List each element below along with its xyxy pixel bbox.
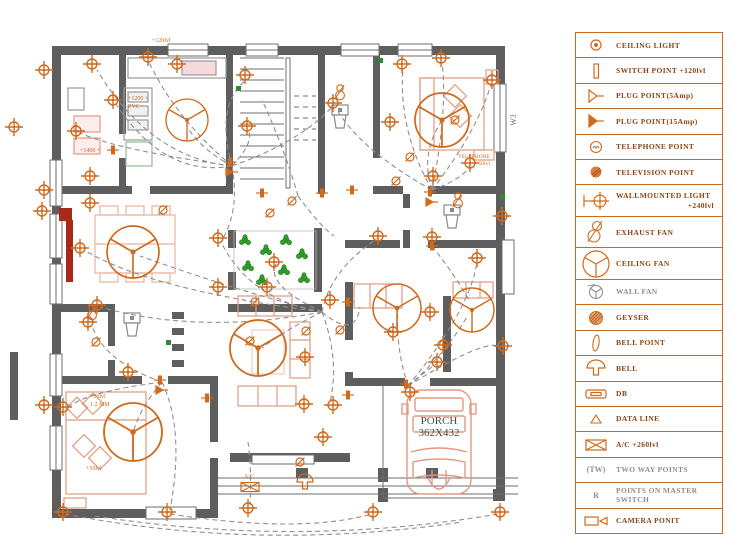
switch-point-icon: [107, 146, 119, 155]
switch-point-icon: [316, 189, 328, 198]
plant-icon: [280, 235, 291, 245]
legend-row-camera: CAMERA PONIT: [576, 509, 722, 533]
plant-icon: [278, 265, 289, 275]
level-label: 1.2 MM: [90, 402, 110, 408]
veranda-steps: [218, 386, 518, 498]
wall-light-icon: [33, 202, 51, 220]
wall-light-icon: [493, 207, 511, 225]
wall-light-icon: [239, 499, 257, 517]
legend-row-bell-point: BELL POINT: [576, 331, 722, 356]
level-label: +1400 +: [80, 148, 101, 154]
legend-label: CEILING FAN: [616, 259, 722, 268]
legend-row-telephone-point: TELEPHONE POINT: [576, 135, 722, 160]
wall-light-icon: [321, 291, 339, 309]
wc-icon: [124, 313, 140, 336]
legend-row-bell: BELL: [576, 356, 722, 381]
switch-point-icon: [576, 62, 616, 80]
legend-row-ac: A/C +260lvl: [576, 432, 722, 457]
ceiling-fan-icon: [576, 249, 616, 279]
plug-point-15amp-icon: [576, 113, 616, 129]
legend-label: A/C +260lvl: [616, 440, 722, 449]
legend-label: DATA LINE: [616, 414, 722, 423]
porch-size-label: 362X432: [419, 427, 460, 439]
porch-label: PORCH: [421, 415, 458, 427]
legend-label: CAMERA PONIT: [616, 516, 722, 525]
legend-label: PLUG POINT(5Amp): [616, 91, 722, 100]
legend-row-geyser: GEYSER: [576, 305, 722, 330]
level-label: +50lvl: [476, 161, 491, 167]
wallmounted-light-icon: [576, 191, 616, 211]
plug-point-icon: [392, 177, 401, 186]
level-label: PVC +: [128, 104, 145, 110]
plant-icon: [296, 249, 307, 259]
plant-icon: [239, 235, 250, 245]
ceiling-fan-icon: [104, 403, 162, 461]
legend-row-ceiling-light: CEILING LIGHT: [576, 33, 722, 58]
legend-label: BELL POINT: [616, 338, 722, 347]
legend-row-ceiling-fan: CEILING FAN: [576, 248, 722, 280]
exhaust-fan-icon: [576, 219, 616, 245]
legend-row-two-way: (TW) TWO WAY POINTS: [576, 458, 722, 483]
wall-light-icon: [238, 117, 256, 135]
legend-label: DB: [616, 389, 722, 398]
wall-light-icon: [265, 253, 283, 271]
wall-light-icon: [83, 55, 101, 73]
plug-point-icon: [336, 326, 345, 335]
wall-light-icon: [491, 503, 509, 521]
legend-label: TWO WAY POINTS: [616, 465, 722, 474]
bell-icon: [576, 358, 616, 378]
wall-light-icon: [295, 395, 313, 413]
plug-point-icon: [159, 206, 168, 215]
legend-row-plug-15amp: PLUG POINT(15Amp): [576, 109, 722, 134]
window-label: W3: [509, 114, 518, 126]
ceiling-light-icon: [576, 37, 616, 53]
wc-icon: [444, 205, 460, 228]
wall-light-icon: [421, 303, 439, 321]
ceiling-fan-icon: [166, 99, 208, 141]
legend-label: WALL FAN: [616, 287, 722, 296]
geyser-icon: [576, 309, 616, 327]
legend-label: SWITCH POINT +120lvl: [616, 66, 722, 75]
legend-label: POINTS ON MASTER SWITCH: [616, 486, 722, 505]
telephone-point-icon: [576, 139, 616, 155]
wall-fan-icon: [576, 283, 616, 301]
switch-point-icon: [154, 376, 166, 385]
wall-light-icon: [381, 113, 399, 131]
wall-light-icon: [209, 229, 227, 247]
wall-light-icon: [5, 118, 23, 136]
legend-row-switch-point: SWITCH POINT +120lvl: [576, 58, 722, 83]
two-way-icon: (TW): [576, 465, 616, 474]
legend-row-wallmounted-light: WALLMOUNTED LIGHT+240lvl: [576, 185, 722, 217]
legend-row-db: DB: [576, 382, 722, 407]
switch-point-icon: [256, 189, 268, 198]
ceiling-fan-icon: [450, 288, 494, 332]
plug-point-icon: [406, 153, 415, 162]
legend-row-exhaust-fan: EXHAUST FAN: [576, 217, 722, 249]
legend-label: GEYSER: [616, 313, 722, 322]
wall-light-icon: [81, 194, 99, 212]
legend-label: TELEPHONE POINT: [616, 142, 722, 151]
legend-panel: CEILING LIGHT SWITCH POINT +120lvl PLUG …: [575, 32, 723, 534]
ac-icon: [576, 437, 616, 453]
legend-label: CEILING LIGHT: [616, 41, 722, 50]
plant-icon: [298, 273, 309, 283]
telephone-label: TELEPHONE: [458, 154, 490, 160]
legend-label: EXHAUST FAN: [616, 228, 722, 237]
ceiling-fan-icon: [230, 320, 286, 376]
wall-light-icon: [296, 348, 314, 366]
legend-label: PLUG POINT(15Amp): [616, 117, 722, 126]
plug-point-icon: [302, 327, 311, 336]
ceiling-fan-icon: [415, 93, 469, 147]
wall-light-icon: [35, 396, 53, 414]
floor-plan-drawing: +120lvl +1200 + PVC + +1400 + TELEPHONE …: [0, 0, 568, 550]
courtyard-plants: [234, 231, 316, 289]
plug-point-icon: [92, 338, 101, 347]
plug-point-icon: [266, 209, 275, 218]
switch-clusters: [107, 146, 438, 403]
plug-point-icon: [426, 198, 438, 206]
wall-light-icon: [35, 61, 53, 79]
legend-label: BELL: [616, 364, 722, 373]
plant-icon: [242, 261, 253, 271]
ac-label: A/C: [244, 474, 254, 480]
exhaust-fan-icon: [335, 85, 344, 100]
wall-light-icon: [81, 167, 99, 185]
television-point-icon: [576, 164, 616, 180]
level-label: +1200 +: [128, 96, 149, 102]
level-label: +120lvl: [152, 38, 171, 44]
data-line-icon: [576, 412, 616, 426]
plug-point-5amp-icon: [576, 88, 616, 104]
legend-label: TELEVISION POINT: [616, 168, 722, 177]
wall-light-icon: [468, 249, 486, 267]
wall-light-icon: [324, 396, 342, 414]
wall-light-icon: [71, 239, 89, 257]
ceiling-fan-icon: [107, 226, 159, 278]
camera-icon: [576, 514, 616, 528]
master-switch-icon: R: [576, 491, 616, 500]
plant-icon: [256, 275, 267, 285]
wall-light-icon: [314, 428, 332, 446]
electrical-floor-plan-page: +120lvl +1200 + PVC + +1400 + TELEPHONE …: [0, 0, 750, 550]
switch-point-icon: [346, 186, 358, 195]
level-label: +50lvl: [90, 394, 106, 400]
wall-light-icon: [424, 167, 442, 185]
wall-light-icon: [393, 55, 411, 73]
switch-point-icon: [342, 391, 354, 400]
db-icon: [576, 387, 616, 401]
legend-label: WALLMOUNTED LIGHT+240lvl: [616, 191, 722, 210]
plug-point-icon: [288, 197, 297, 206]
legend-row-wall-fan: WALL FAN: [576, 280, 722, 305]
level-label: +50lvl: [86, 466, 102, 472]
ac-icon: [241, 483, 259, 492]
legend-row-master-switch: R POINTS ON MASTER SWITCH: [576, 483, 722, 508]
furniture: [64, 58, 498, 508]
bell-point-icon: [576, 332, 616, 354]
wall-light-icon: [364, 503, 382, 521]
legend-row-plug-5amp: PLUG POINT(5Amp): [576, 84, 722, 109]
legend-row-television-point: TELEVISION POINT: [576, 160, 722, 185]
legend-row-data-line: DATA LINE: [576, 407, 722, 432]
plant-icon: [260, 245, 271, 255]
